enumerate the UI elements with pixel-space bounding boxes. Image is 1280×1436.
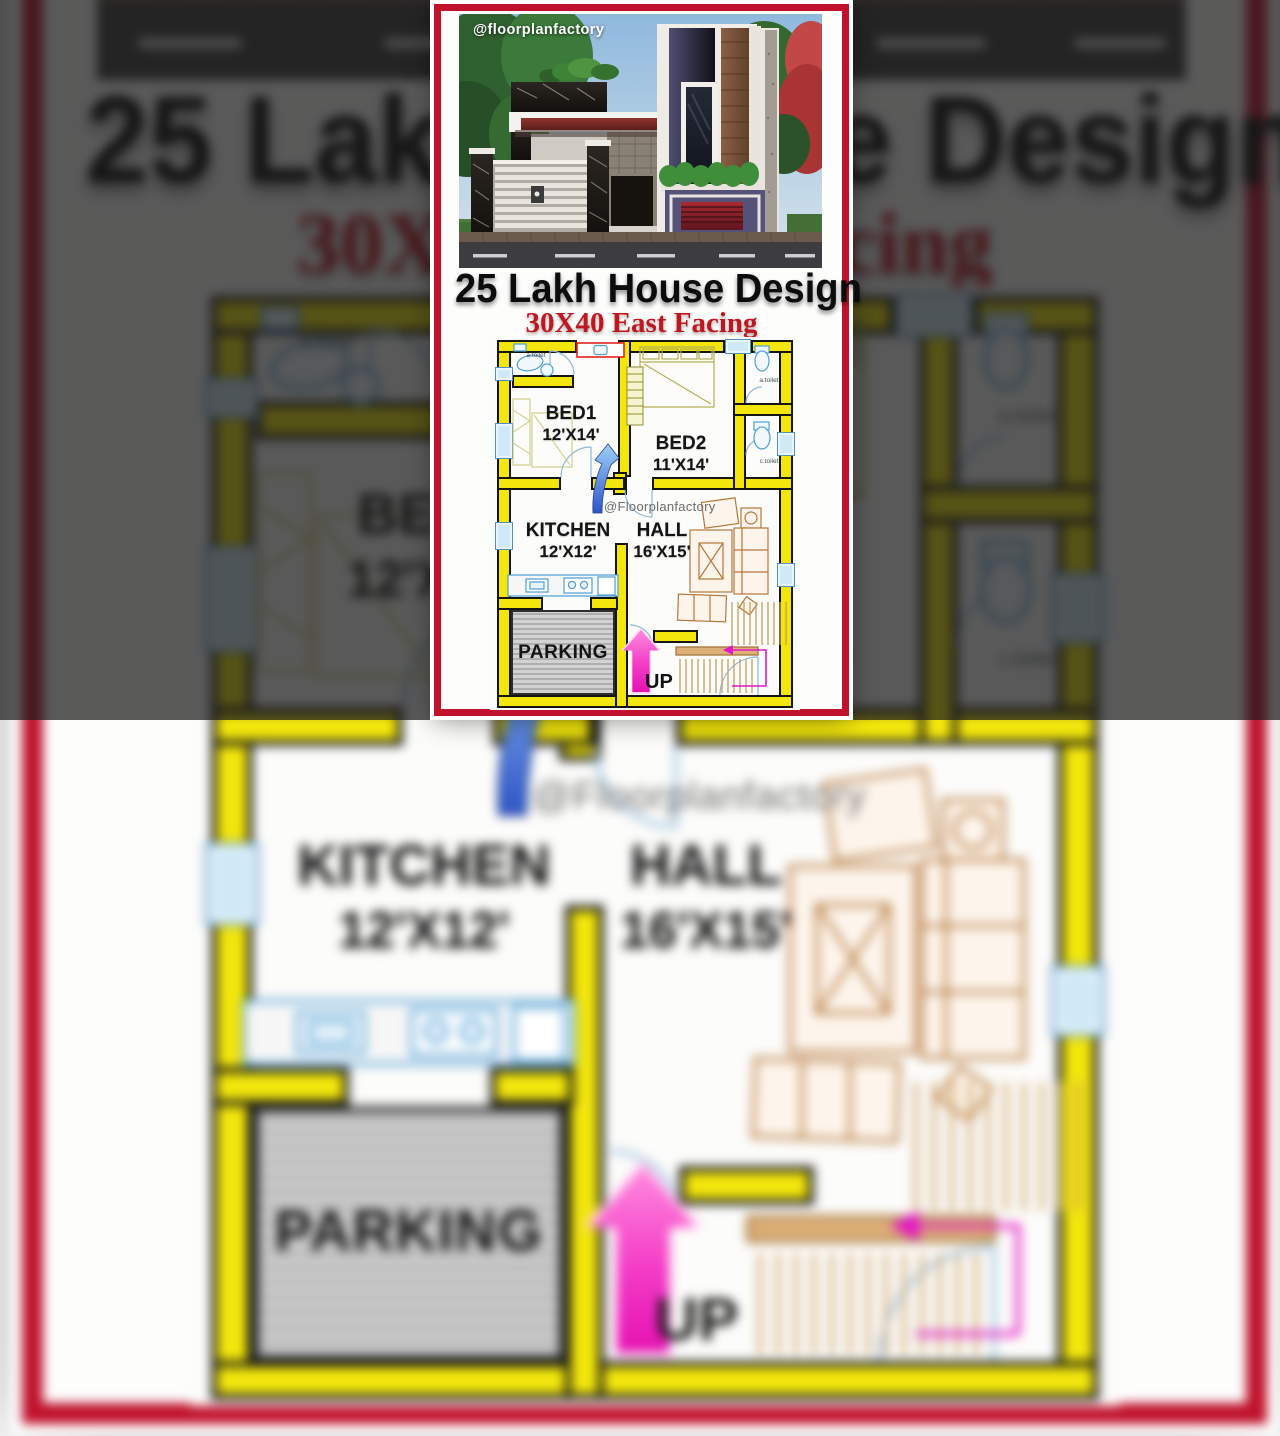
floor-plan: PARKING UP BED1 12'X14' BED2 11'X14' KIT…: [490, 337, 800, 710]
video-frame: @floorplanfactory 25 Lakh House Design 3…: [0, 0, 1280, 720]
design-card: @floorplanfactory 25 Lakh House Design 3…: [434, 4, 849, 716]
up-label: UP: [645, 671, 673, 694]
room-label-kitchen: KITCHEN 12'X12': [524, 520, 612, 562]
parking-label: PARKING: [274, 1201, 543, 1267]
plan-watermark: @Floorplanfactory: [604, 499, 716, 514]
plan-watermark: @Floorplanfactory: [532, 773, 867, 818]
house-render-image: @floorplanfactory: [459, 14, 822, 268]
kitchen-counter: [508, 575, 618, 596]
wardrobe: [627, 367, 643, 425]
bed2-furniture: [640, 347, 714, 407]
up-label: UP: [655, 1289, 738, 1358]
room-label-bed2: BED2 11'X14': [638, 433, 724, 475]
room-label-hall: HALL 16'X15': [580, 836, 832, 963]
parking-label: PARKING: [518, 642, 608, 664]
room-parking: PARKING: [511, 610, 615, 695]
kitchen-counter: [244, 1001, 574, 1064]
house-render-art: [459, 14, 822, 268]
page-title: 25 Lakh House Design: [455, 267, 828, 309]
photo-watermark: @floorplanfactory: [473, 22, 604, 38]
toilet-label-top-left: a.toilet: [516, 352, 556, 359]
room-parking: PARKING: [253, 1106, 565, 1361]
page-subtitle: 30X40 East Facing: [441, 308, 842, 338]
toilet-label-right-bottom: c.toilet: [744, 458, 794, 465]
toilet-label-right-top: a.toilet: [744, 377, 794, 384]
room-label-kitchen: KITCHEN 12'X12': [292, 836, 556, 963]
room-label-bed1: BED1 12'X14': [528, 403, 614, 445]
room-label-hall: HALL 16'X15': [620, 520, 704, 562]
